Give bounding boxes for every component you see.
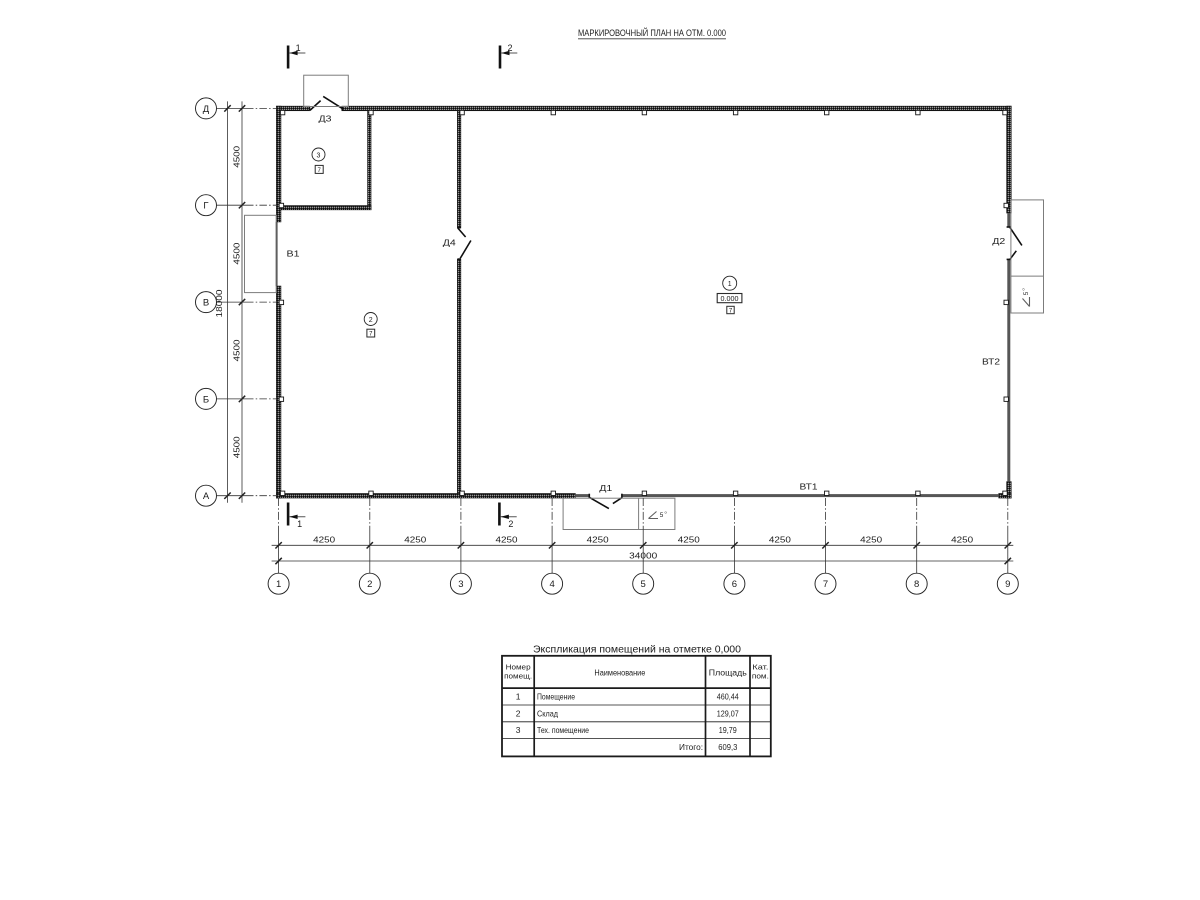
svg-text:Итого:: Итого: (679, 742, 703, 752)
svg-text:Г: Г (203, 201, 208, 212)
svg-text:Экспликация помещений на отмет: Экспликация помещений на отметке 0,000 (533, 643, 741, 655)
svg-text:5: 5 (641, 579, 646, 590)
svg-text:В: В (203, 297, 209, 308)
svg-text:Номер: Номер (506, 663, 531, 672)
svg-text:Тех. помещение: Тех. помещение (537, 725, 589, 735)
svg-text:1: 1 (296, 43, 301, 53)
svg-text:460,44: 460,44 (717, 692, 739, 702)
svg-text:Д2: Д2 (992, 237, 1006, 246)
svg-text:1: 1 (728, 281, 732, 288)
svg-text:3: 3 (516, 725, 521, 735)
svg-text:4250: 4250 (404, 536, 427, 545)
svg-text:1: 1 (276, 579, 281, 590)
svg-text:Склад: Склад (537, 708, 558, 718)
svg-text:o: o (1020, 288, 1025, 291)
svg-text:4500: 4500 (232, 339, 241, 362)
svg-text:7: 7 (823, 579, 828, 590)
svg-text:4500: 4500 (232, 435, 241, 458)
svg-text:8: 8 (914, 579, 919, 590)
svg-text:5: 5 (660, 512, 664, 519)
svg-text:9: 9 (1005, 579, 1010, 590)
svg-text:МАРКИРОВОЧНЫЙ ПЛАН НА ОТМ. 0.0: МАРКИРОВОЧНЫЙ ПЛАН НА ОТМ. 0.000 (578, 27, 726, 39)
svg-text:4250: 4250 (587, 536, 610, 545)
svg-text:ВТ1: ВТ1 (800, 482, 819, 491)
svg-text:Д: Д (203, 104, 210, 115)
svg-text:Д3: Д3 (319, 115, 333, 124)
svg-text:1: 1 (516, 692, 521, 702)
svg-text:4250: 4250 (678, 536, 701, 545)
svg-text:В1: В1 (287, 249, 301, 258)
svg-text:34000: 34000 (629, 551, 658, 560)
svg-text:помещ.: помещ. (504, 672, 532, 681)
svg-text:4250: 4250 (496, 536, 519, 545)
svg-text:1: 1 (297, 519, 302, 529)
svg-text:Д1: Д1 (599, 484, 613, 493)
svg-text:o: o (664, 509, 667, 514)
svg-text:пом.: пом. (752, 672, 769, 681)
svg-text:18000: 18000 (215, 289, 224, 318)
svg-text:Площадь: Площадь (709, 669, 747, 678)
svg-text:2: 2 (367, 579, 372, 590)
svg-text:4250: 4250 (860, 536, 883, 545)
svg-text:5: 5 (1023, 291, 1030, 295)
svg-text:6: 6 (732, 579, 737, 590)
svg-text:19,79: 19,79 (719, 725, 737, 735)
svg-text:Б: Б (203, 394, 209, 405)
svg-text:ВТ2: ВТ2 (982, 358, 1001, 367)
svg-text:609,3: 609,3 (718, 742, 737, 752)
svg-text:4: 4 (549, 579, 554, 590)
svg-text:А: А (203, 491, 210, 502)
svg-text:2: 2 (507, 43, 512, 53)
svg-text:2: 2 (516, 708, 521, 718)
svg-text:3: 3 (317, 152, 321, 159)
svg-text:0.000: 0.000 (721, 296, 739, 303)
svg-text:Кат.: Кат. (752, 663, 768, 672)
svg-text:4500: 4500 (232, 242, 241, 265)
svg-text:4500: 4500 (232, 145, 241, 168)
svg-text:2: 2 (508, 519, 513, 529)
svg-text:Наименование: Наименование (594, 669, 645, 678)
svg-text:Д4: Д4 (443, 239, 457, 248)
svg-text:4250: 4250 (951, 536, 974, 545)
svg-text:2: 2 (369, 317, 373, 324)
svg-text:129,07: 129,07 (717, 708, 739, 718)
svg-text:3: 3 (458, 579, 463, 590)
svg-text:4250: 4250 (769, 536, 792, 545)
svg-text:Помещение: Помещение (537, 692, 575, 702)
svg-text:4250: 4250 (313, 536, 336, 545)
